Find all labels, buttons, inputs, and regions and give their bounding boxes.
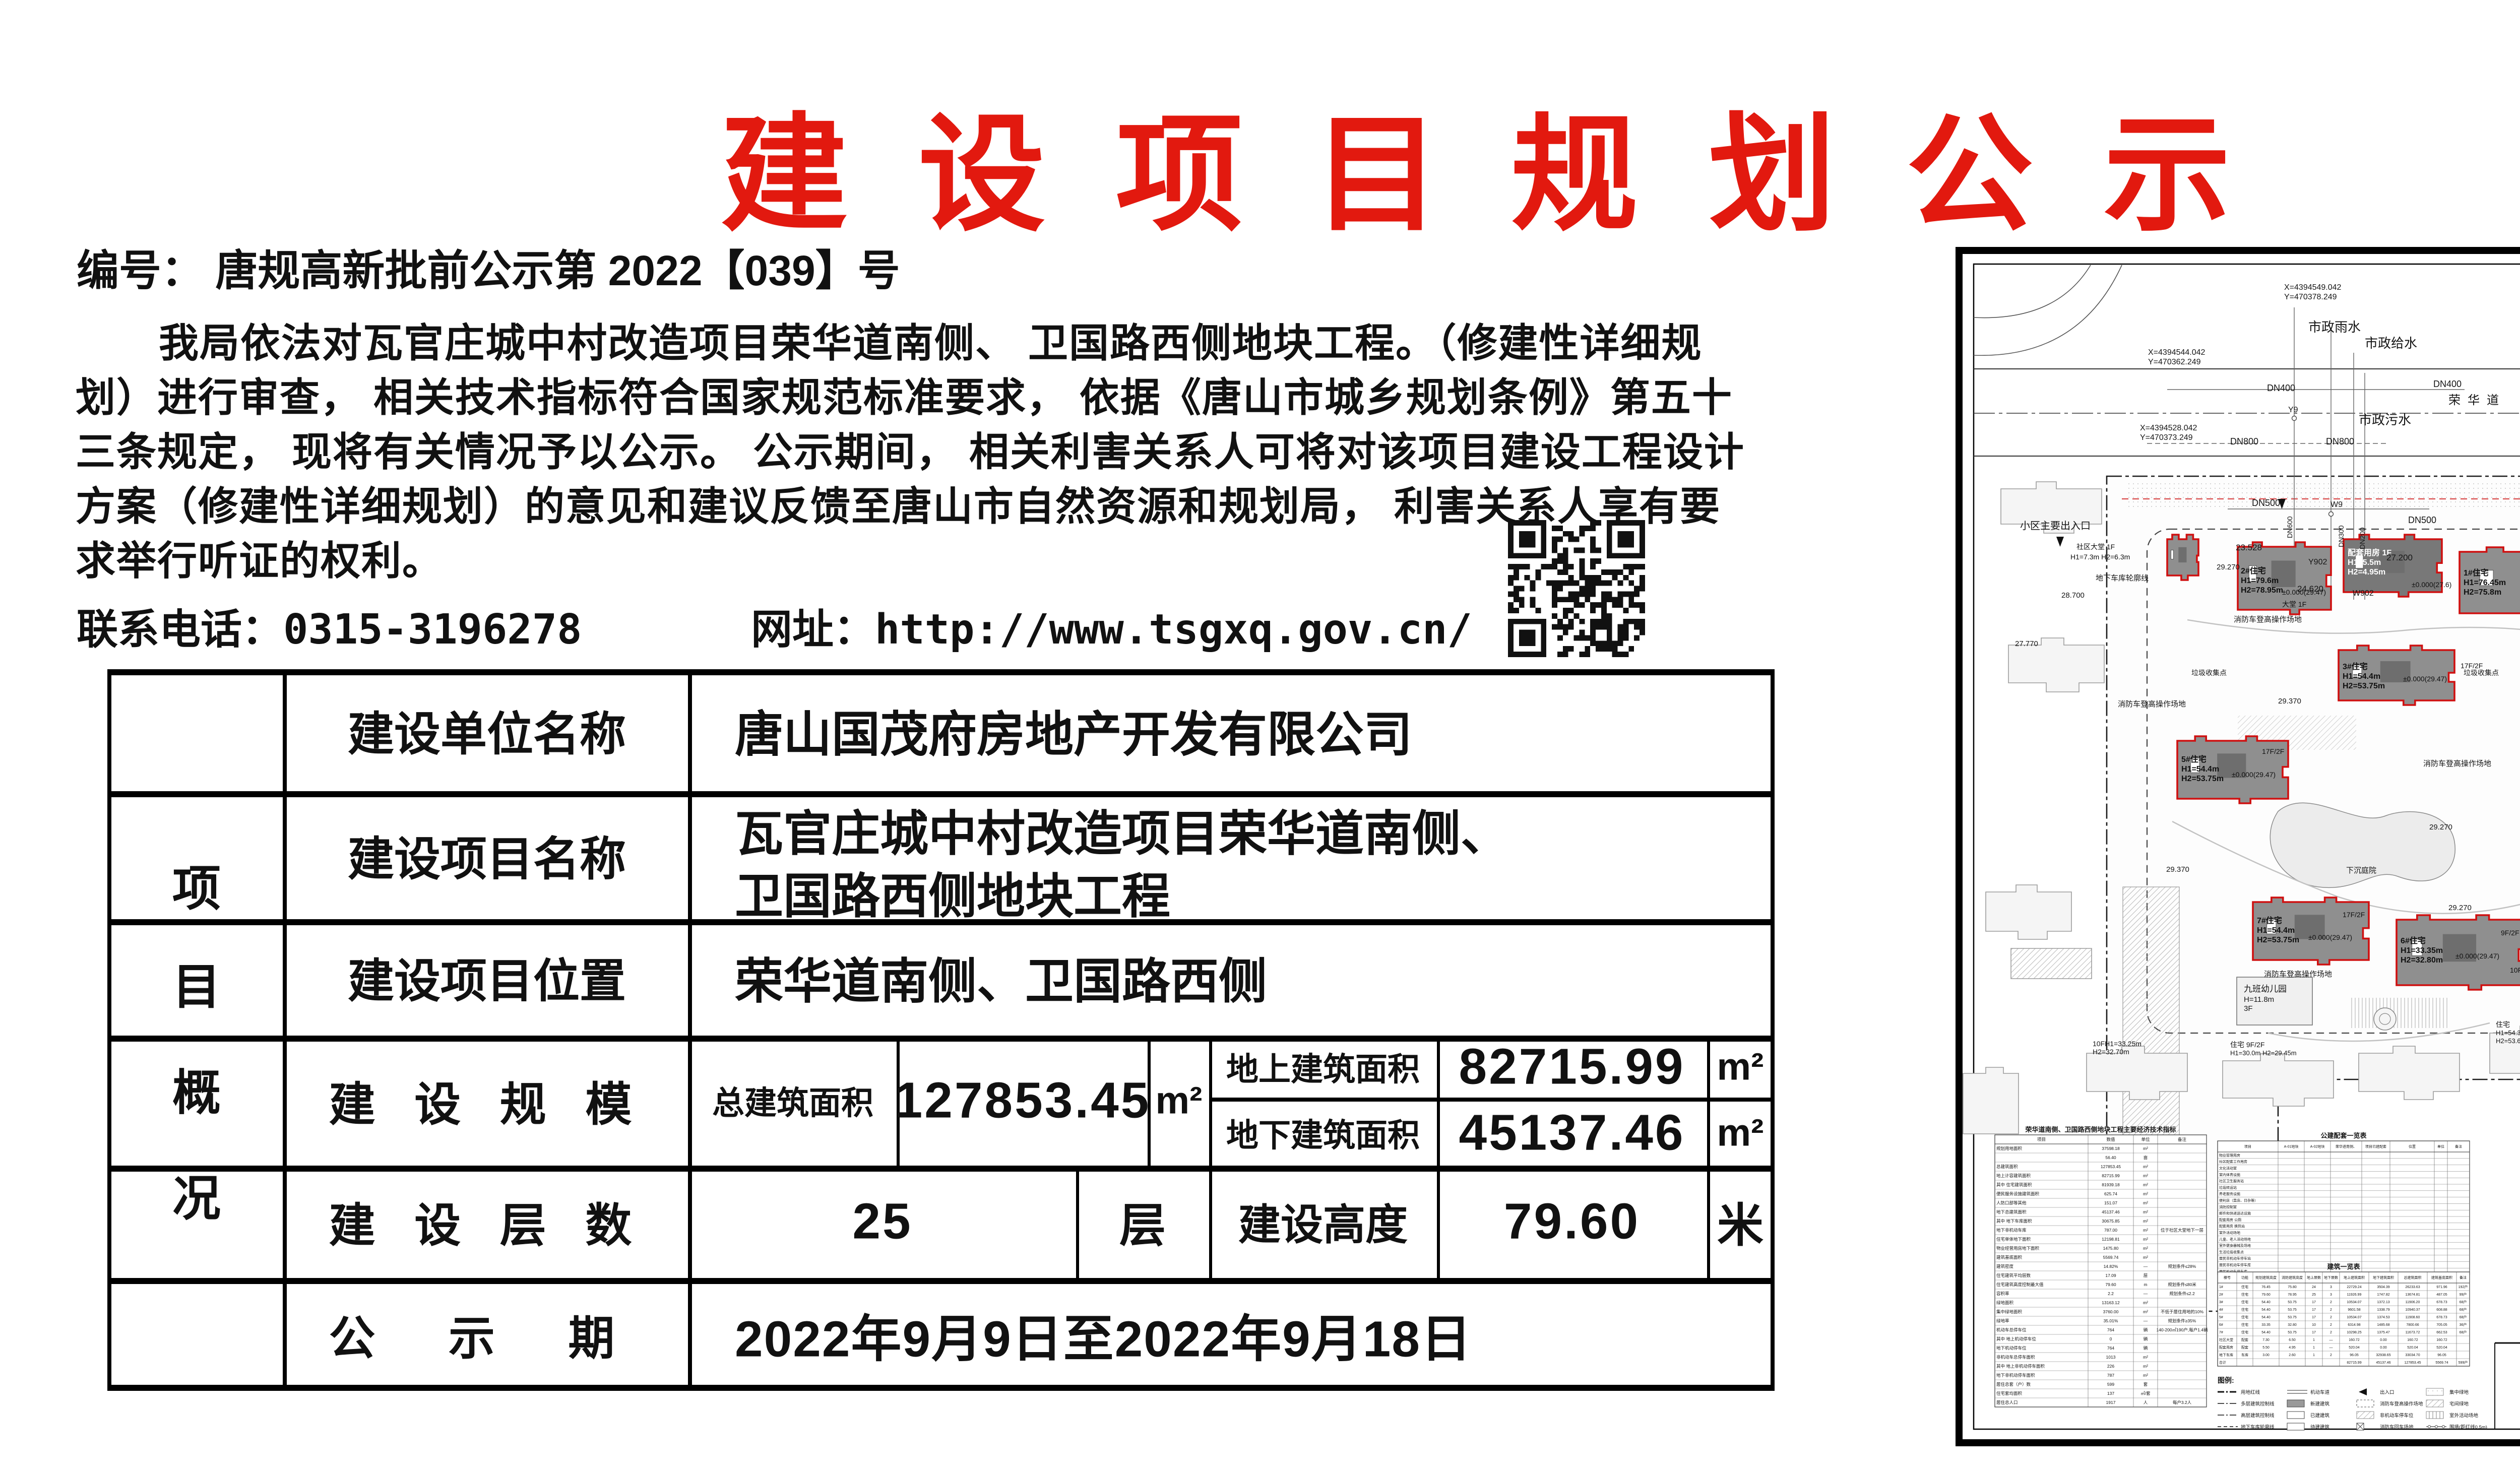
building-list-table-cell: 17 <box>2312 1308 2316 1312</box>
plan-label: 住宅 9F/2F <box>2230 1041 2264 1049</box>
economic-indicator-table-cell: m² <box>2143 1228 2148 1233</box>
building-label: ±0.000(29.47) <box>2308 933 2352 941</box>
economic-indicator-table-cell: 37598.18 <box>2102 1146 2120 1151</box>
dotted-strip <box>2127 483 2520 510</box>
building-list-table-cell: 53.75 <box>2288 1308 2297 1312</box>
economic-indicator-table-cell: 居住总套（户）数 <box>1996 1382 2031 1387</box>
building-label: 2#住宅 <box>2241 566 2266 575</box>
building-list-table-cell: 127853.45 <box>2404 1361 2421 1365</box>
building-list-table-cell: 25 <box>2312 1293 2316 1297</box>
plan-legend-item: 高层建筑控制线 <box>2241 1413 2275 1419</box>
economic-indicator-table-cell: m² <box>2143 1255 2148 1260</box>
plan-label: 消防车登高操作场地 <box>2264 970 2332 979</box>
building-list-table-cell: 1 <box>2313 1346 2315 1350</box>
economic-indicator-table-cell: m² <box>2143 1209 2148 1214</box>
building-list-table-cell: 4.95 <box>2289 1346 2296 1350</box>
building-list-table-cell: 32938.65 <box>2376 1354 2390 1357</box>
economic-indicator-table-cell: 3760.00 <box>2103 1309 2119 1314</box>
contact-line: 联系电话：0315-3196278 网址：http://www.tsgxq.go… <box>77 596 1472 656</box>
building-list-table-cell: 住宅 <box>2241 1307 2248 1312</box>
notice-title: 建设项目规划公示 <box>721 72 2301 255</box>
public-facility-table-cell: 室外活动场地 <box>2219 1230 2240 1235</box>
building-list-table-cell: 配套 <box>2241 1337 2248 1342</box>
public-facility-table: 公建配套一览表项目A-01地块A-02地块荣华道南侧、项目已建配套位置单位备注物… <box>2218 1132 2470 1274</box>
plan-label: X=4394549.042 <box>2284 283 2342 292</box>
economic-indicator-table-cell: m² <box>2143 1237 2148 1242</box>
contact-phone: 0315-3196278 <box>283 606 582 654</box>
plan-label: DN400 <box>2267 383 2295 393</box>
building-list-table-cell: 11673.72 <box>2406 1331 2420 1334</box>
location-label: 建设项目位置 <box>348 944 626 1011</box>
building-list-table-cell: 配套 <box>2241 1345 2248 1350</box>
economic-indicator-table-cell: m² <box>2143 1309 2148 1314</box>
building-list-table-cell: 68户 <box>2460 1315 2467 1319</box>
economic-indicator-table-cell: m² <box>2143 1364 2148 1369</box>
plan-element <box>2426 1388 2443 1395</box>
project-name-label: 建设项目名称 <box>348 822 626 889</box>
economic-indicator-table-cell: 住宅建筑高度控制最大值 <box>1996 1282 2044 1287</box>
building-list-table-cell: 4# <box>2219 1308 2223 1312</box>
economic-indicator-table-cell: 规划条件≤2.2 <box>2169 1291 2195 1296</box>
project-overview-table: 项 目 概 况 建设单位名称 建设项目名称 建设项目位置 建 设 规 模 建 设… <box>107 669 1775 1391</box>
economic-indicator-table-cell: 规划用地面积 <box>1996 1146 2023 1151</box>
building-list-table-cell: 1375.47 <box>2377 1331 2389 1334</box>
building-list-table-cell: 0.00 <box>2380 1338 2387 1342</box>
building-label: ±0.000(29.47) <box>2403 675 2447 683</box>
plan-legend-item: 宅间绿地 <box>2449 1401 2469 1407</box>
building-list-table-cell: 22729.24 <box>2347 1286 2361 1289</box>
building-label: H1=54.4m <box>2181 765 2219 774</box>
project-name-value-line2: 卫国路西侧地块工程 <box>735 857 1170 927</box>
plan-label: DN800 <box>2230 436 2258 446</box>
building-list-table-header: 地下层数 <box>2324 1275 2338 1279</box>
activity-ground <box>2349 998 2449 1028</box>
economic-indicator-table: 荣华道南侧、卫国路西侧地块工程主要经济技术指标项目数值单位备注规划用地面积375… <box>1995 1126 2208 1407</box>
public-facility-table-header: A-02地块 <box>2310 1144 2325 1148</box>
plan-legend-item: 新建建筑 <box>2310 1401 2330 1407</box>
website-link[interactable]: http://www.tsgxq.gov.cn/ <box>875 606 1472 654</box>
building-roof-core <box>2178 547 2186 562</box>
plan-element <box>2287 1412 2304 1419</box>
building-list-table-cell: 99户 <box>2460 1292 2467 1297</box>
building-label: 9F/2F <box>2501 929 2519 937</box>
building-list-table-cell: 3# <box>2219 1301 2223 1304</box>
plan-element <box>2426 1412 2443 1419</box>
building-list-table-cell: 17 <box>2312 1316 2316 1319</box>
plan-label: DN500 <box>2252 498 2280 508</box>
building-label: 7#住宅 <box>2257 916 2282 925</box>
building-list-table-cell: 住宅 <box>2241 1292 2248 1297</box>
building-list-table-cell: 11906.20 <box>2406 1301 2420 1304</box>
below-area-unit: m² <box>1717 1111 1764 1155</box>
building-label: ±0.000(29.47) <box>2455 952 2499 960</box>
building-list-table-cell: 1747.82 <box>2377 1293 2389 1297</box>
plan-label: X=4394528.042 <box>2140 424 2197 432</box>
economic-indicator-table-cell: 集中绿地面积 <box>1996 1309 2023 1314</box>
plan-label: DN600 <box>2286 516 2294 538</box>
building-list-table-cell: 地下车库 <box>2219 1353 2233 1357</box>
below-area-label: 地下建筑面积 <box>1226 1110 1420 1156</box>
building-list-table-cell: 3504.39 <box>2377 1286 2389 1289</box>
economic-indicator-table-cell: 亩 <box>2144 1155 2148 1160</box>
building-list-table-cell: 6# <box>2219 1323 2223 1327</box>
building-label: 社区大堂 1F <box>2076 543 2115 551</box>
public-facility-table-header: 项目已建配套 <box>2365 1144 2386 1148</box>
economic-indicator-table-cell: 2.2 <box>2108 1291 2114 1296</box>
economic-indicator-table-cell: 规划条件≤80米 <box>2168 1282 2196 1287</box>
total-area-label: 总建筑面积 <box>712 1077 873 1124</box>
economic-indicator-table-cell: 1917 <box>2106 1400 2116 1405</box>
body-line-1: 我局依法对瓦官庄城中村改造项目荣华道南侧、 卫国路西侧地块工程。（修建性详细规 <box>76 310 1702 368</box>
economic-indicator-table-cell: — <box>2144 1318 2148 1323</box>
economic-indicator-table-cell: 总建筑面积 <box>1996 1164 2018 1169</box>
economic-indicator-table-cell: 764 <box>2107 1327 2114 1332</box>
economic-indicator-table-cell: 人防口部等其他 <box>1996 1200 2027 1205</box>
floors-label: 建 设 层 数 <box>329 1188 645 1255</box>
public-facility-table-header: 备注 <box>2455 1144 2462 1148</box>
building-list-table-cell: 10534.07 <box>2347 1316 2361 1319</box>
public-facility-table-cell: 邮件和快递送达设施 <box>2219 1211 2251 1215</box>
building-list-table-cell: 17 <box>2312 1331 2316 1334</box>
height-label: 建设高度 <box>1238 1191 1408 1252</box>
building-list-table-cell: 5# <box>2219 1316 2223 1319</box>
economic-indicator-table-cell: 30675.85 <box>2102 1219 2120 1224</box>
economic-indicator-table-cell: 住宅套均面积 <box>1996 1391 2023 1396</box>
public-facility-table-header: 位置 <box>2409 1144 2416 1148</box>
building-label: H2=53.75m <box>2181 775 2224 783</box>
building-list-table-cell: 2 <box>2330 1316 2332 1319</box>
building-list-table-cell: 53.75 <box>2288 1301 2297 1304</box>
height-unit: 米 <box>1717 1188 1763 1255</box>
building-label: H1=54.4m <box>2257 926 2295 935</box>
building-list-table-cell: 10 <box>2312 1323 2316 1327</box>
economic-indicator-table-cell: 建筑基底面积 <box>1996 1255 2023 1260</box>
plan-element <box>2426 1400 2443 1407</box>
plan-label: H2=32.70m <box>2093 1048 2129 1056</box>
plan-label: 消防车登高操作场地 <box>2423 759 2491 768</box>
building-label: H1=76.45m <box>2464 579 2506 587</box>
plan-label: 消防车登高操作场地 <box>2234 615 2302 624</box>
plan-label: 29.370 <box>2278 697 2301 706</box>
public-facility-table-cell: 居民非机动车停车站 <box>2219 1256 2251 1261</box>
economic-indicator-table-cell: 规划条件≥35% <box>2168 1318 2196 1323</box>
building-list-table-cell: 3 <box>2330 1286 2332 1289</box>
site-plan-svg: 社区大堂 1FH1=7.3m H2=6.3m2#住宅H1=79.6mH2=78.… <box>1956 247 2520 1446</box>
building-list-table-cell: 96.05 <box>2350 1354 2359 1357</box>
building-list-table-cell: 10940.37 <box>2405 1308 2420 1312</box>
economic-indicator-table-cell: 辆 <box>2144 1346 2148 1351</box>
economic-indicator-table-header: 备注 <box>2178 1137 2187 1142</box>
economic-indicator-table-cell: 1013 <box>2106 1355 2116 1360</box>
building-list-table-header: 地上层数 <box>2307 1275 2321 1279</box>
building-list-table-cell: 7800.66 <box>2406 1323 2419 1327</box>
plan-label: DN200 <box>2358 527 2366 549</box>
plan-label: 3F <box>2244 1004 2253 1013</box>
unit-name-label: 建设单位名称 <box>348 697 626 764</box>
economic-indicator-table-cell: 127853.45 <box>2101 1164 2121 1169</box>
building-list-table-cell: 68户 <box>2460 1330 2467 1334</box>
economic-indicator-table-cell: 其中 地下车库面积 <box>1996 1219 2032 1224</box>
building-label: H2=4.95m <box>2348 568 2385 577</box>
building-list-table-cell: 2 <box>2330 1323 2332 1327</box>
building-list-table-cell: 520.04 <box>2436 1346 2447 1350</box>
economic-indicator-table-cell: 151.07 <box>2104 1200 2117 1205</box>
economic-indicator-table-cell: 其中 住宅建筑面积 <box>1996 1182 2032 1187</box>
building-list-table-cell: 33034.70 <box>2405 1354 2420 1357</box>
building-label: H2=32.80m <box>2401 956 2443 965</box>
building-list-table-cell: 2 <box>2330 1308 2332 1312</box>
economic-indicator-table-cell: 0 <box>2110 1336 2112 1341</box>
plan-element <box>2287 1400 2304 1407</box>
building-list-table-cell: 10534.07 <box>2347 1301 2361 1304</box>
economic-indicator-table-cell: 每户3.2人 <box>2173 1400 2192 1405</box>
plan-label: 小区主要出入口 <box>2020 520 2091 532</box>
economic-indicator-table-cell: 建筑密度 <box>1996 1264 2014 1269</box>
economic-indicator-table-cell: 住宅单体地下面积 <box>1996 1237 2031 1242</box>
economic-indicator-table-cell: 绿地率 <box>1996 1318 2009 1323</box>
plan-legend-item: 机动车道 <box>2310 1389 2330 1395</box>
building-list-table-cell: 75.80 <box>2288 1286 2297 1289</box>
building-label: H1=54.4m <box>2343 672 2380 681</box>
total-area-value: 127853.45 <box>895 1072 1151 1130</box>
plan-label: Y=470373.249 <box>2140 433 2193 442</box>
building-list-table-cell: 住宅 <box>2241 1315 2248 1319</box>
building-list-table-cell: 2# <box>2219 1293 2223 1297</box>
economic-indicator-table-cell: 17.09 <box>2105 1273 2116 1278</box>
building-list-table-cell: 7.30 <box>2262 1338 2270 1342</box>
economic-indicator-table-cell: 764 <box>2107 1346 2114 1351</box>
public-facility-table-cell: 文化活动室 <box>2219 1166 2237 1170</box>
plan-label: 27.770 <box>2015 639 2038 648</box>
building-label: H2=75.8m <box>2464 588 2501 597</box>
economic-indicator-table-cell: ㎡/套 <box>2140 1391 2151 1396</box>
doc-number: 编号： 唐规高新批前公示第 2022【039】号 <box>77 237 900 298</box>
building-list-table-cell: 17 <box>2312 1301 2316 1304</box>
side-label-char: 项 <box>172 850 221 920</box>
building-list-table-cell: 192户 <box>2459 1285 2468 1289</box>
building-list-table-cell: 79.60 <box>2261 1293 2271 1297</box>
plan-label: 29.270 <box>2217 563 2240 571</box>
public-facility-table-cell: 垃圾转运站 <box>2219 1185 2237 1190</box>
plan-label: 29.270 <box>2448 904 2472 912</box>
building-list-table-cell: 6.50 <box>2289 1338 2296 1342</box>
plan-label: H2=53.65m <box>2496 1037 2520 1045</box>
building-list-table-cell: 96.05 <box>2437 1354 2446 1357</box>
building-list-table-cell: 1372.13 <box>2377 1301 2389 1304</box>
plan-label: 下沉庭院 <box>2346 866 2376 875</box>
economic-indicator-table-header: 单位 <box>2141 1137 2150 1142</box>
public-facility-table-cell: 室外健身器械及场地 <box>2219 1243 2251 1248</box>
building-list-table-cell: 2 <box>2330 1354 2332 1357</box>
building-list-table-cell: 76.45 <box>2261 1286 2271 1289</box>
plan-element <box>2357 1412 2374 1419</box>
economic-indicator-table-cell: m² <box>2143 1191 2148 1196</box>
building-list-table-title: 建筑一览表 <box>2327 1263 2360 1270</box>
building-label: 6#住宅 <box>2401 936 2426 945</box>
plan-label: W9 <box>2330 500 2343 509</box>
body-line-4: 方案（修建性详细规划）的意见和建议反馈至唐山市自然资源和规划局， 利害关系人享有… <box>76 474 1721 532</box>
public-facility-table-cell: 社区配套工作用房 <box>2219 1160 2247 1164</box>
plan-label: 23.528 <box>2236 543 2262 552</box>
building-list-table-cell: 11926.99 <box>2347 1293 2362 1297</box>
building-label: 1#住宅 <box>2464 568 2489 578</box>
public-facility-table-cell: 居民非机动车停车库 <box>2219 1262 2251 1267</box>
plan-label: 29.270 <box>2429 823 2452 831</box>
economic-indicator-table-cell: 其中 地上机动停车位 <box>1996 1336 2036 1341</box>
economic-indicator-table-cell: m² <box>2143 1164 2148 1169</box>
public-facility-table-header: 荣华道南侧、 <box>2336 1144 2357 1148</box>
economic-indicator-table-cell: — <box>2144 1291 2148 1296</box>
building-list-table-cell: 2 <box>2330 1331 2332 1334</box>
plan-label: Y9 <box>2288 406 2298 414</box>
economic-indicator-table-cell: 12198.81 <box>2102 1237 2120 1242</box>
economic-indicator-table-cell: m² <box>2143 1173 2148 1178</box>
economic-indicator-table-cell: 787 <box>2107 1373 2114 1378</box>
plan-label: 市政给水 <box>2365 336 2417 351</box>
plan-element <box>2442 1426 2445 1428</box>
building-list-table-cell: 2.60 <box>2289 1354 2296 1357</box>
economic-indicator-table-cell: m² <box>2143 1219 2148 1224</box>
building-list-table-cell: 662.53 <box>2436 1331 2447 1334</box>
building-list-table-header: 地上建筑面积 <box>2344 1275 2365 1279</box>
fountain <box>2374 1008 2396 1030</box>
economic-indicator-table-cell: m² <box>2143 1246 2148 1251</box>
public-facility-table-cell: 室内体育设施 <box>2219 1172 2240 1177</box>
economic-indicator-table-cell: m² <box>2143 1355 2148 1360</box>
period-value: 2022年9月9日至2022年9月18日 <box>735 1298 1472 1371</box>
plan-label: 住宅 <box>2496 1020 2510 1029</box>
building-list-table-cell: — <box>2329 1346 2333 1350</box>
building-list-table-header: 功能 <box>2241 1275 2248 1279</box>
economic-indicator-table-cell: 机动车总停车位 <box>1996 1327 2027 1332</box>
building-list-table-cell: 68户 <box>2460 1307 2467 1312</box>
economic-indicator-table-cell: 其中 地上非机动停车面积 <box>1996 1364 2045 1369</box>
body-line-2: 划）进行审查， 相关技术指标符合国家规范标准要求， 依据《唐山市城乡规划条例》第… <box>76 365 1733 423</box>
economic-indicator-table-cell: 规划条件≤28% <box>2168 1264 2196 1269</box>
economic-indicator-table-cell: 82715.99 <box>2102 1173 2120 1178</box>
building-list-table-cell: 54.40 <box>2261 1331 2271 1334</box>
building-list-table-cell: 54.40 <box>2261 1308 2271 1312</box>
project-name-value-line1: 瓦官庄城中村改造项目荣华道南侧、 <box>735 795 1509 865</box>
contact-phone-label: 联系电话： <box>77 607 283 653</box>
plan-label: DN300 <box>2337 525 2345 547</box>
plan-label: 地下车库轮廓线 <box>2096 574 2149 583</box>
site-plan-drawing: 社区大堂 1FH1=7.3m H2=6.3m2#住宅H1=79.6mH2=78.… <box>1956 247 2520 1446</box>
economic-indicator-table-cell: m² <box>2143 1373 2148 1378</box>
plan-label: H1=54.3m <box>2496 1029 2520 1037</box>
building-list-table-header: 建筑基底面积 <box>2431 1275 2452 1279</box>
public-facility-table-title: 公建配套一览表 <box>2320 1132 2367 1139</box>
building-list-table-cell: 24 <box>2312 1286 2316 1289</box>
below-area-value: 45137.46 <box>1459 1104 1685 1162</box>
economic-indicator-table-cell: 14.82% <box>2104 1264 2118 1269</box>
building-list-table-cell: 82715.99 <box>2347 1361 2361 1365</box>
building-list-table-cell: 住宅 <box>2241 1300 2248 1304</box>
unit-name-value: 唐山国茂府房地产开发有限公司 <box>735 695 1412 765</box>
building-list-table-cell: 11908.60 <box>2406 1316 2420 1319</box>
building-label: ±0.000(29.47) <box>2232 771 2276 779</box>
building-list-table-cell: 26233.63 <box>2405 1286 2420 1289</box>
building-list-table-header: 地下建筑面积 <box>2373 1275 2394 1279</box>
building-list-table-cell: 54.40 <box>2261 1316 2271 1319</box>
building-list-table-cell: 678.73 <box>2436 1316 2447 1319</box>
building-label: H1=7.3m H2=6.3m <box>2070 553 2130 561</box>
plan-label: 24.620 <box>2297 584 2323 594</box>
building-list-table-header: 消防建筑高度 <box>2282 1275 2303 1279</box>
building-list-table-cell: 1 <box>2313 1338 2315 1342</box>
building-list-table-cell: 971.96 <box>2436 1286 2447 1289</box>
plan-legend-item: 出入口 <box>2380 1389 2395 1395</box>
plan-legend-item: 多层建筑控制线 <box>2241 1401 2275 1407</box>
economic-indicator-table-cell: 79.60 <box>2105 1282 2116 1287</box>
public-facility-table-grid <box>2218 1141 2470 1274</box>
plan-label: 荣华道 <box>2448 394 2506 407</box>
plan-legend-item: 已建建筑 <box>2310 1413 2330 1419</box>
plan-legend-title: 图例: <box>2218 1376 2234 1384</box>
public-facility-table-cell: 配套用房 公厕 <box>2219 1218 2241 1222</box>
building-list-table-cell: 160.72 <box>2436 1338 2447 1342</box>
economic-indicator-table-cell: 13163.12 <box>2102 1300 2120 1305</box>
plan-label: W902 <box>2353 589 2374 598</box>
side-label-char: 概 <box>172 1054 221 1124</box>
total-area-unit: m² <box>1156 1079 1203 1123</box>
economic-indicator-table-cell: 599 <box>2107 1382 2114 1387</box>
side-label-char: 况 <box>172 1160 221 1230</box>
plan-label: DN500 <box>2408 515 2436 525</box>
building-list-table-cell: 9601.58 <box>2348 1308 2360 1312</box>
building-list-table-cell: 68户 <box>2460 1300 2467 1304</box>
above-area-unit: m² <box>1717 1045 1764 1089</box>
public-facility-table-cell: 儿童、老人活动场地 <box>2219 1237 2251 1241</box>
building-list-table-header: 总建筑面积 <box>2404 1275 2422 1279</box>
economic-indicator-table-cell: 物业经营用房地下面积 <box>1996 1246 2040 1251</box>
building-list-table-cell: — <box>2329 1338 2333 1342</box>
plan-legend-item: 室外活动场地 <box>2449 1413 2479 1419</box>
economic-indicator-table-cell: 5569.74 <box>2103 1255 2119 1260</box>
plan-label: Y902 <box>2308 558 2327 566</box>
economic-indicator-table-cell: 625.74 <box>2104 1191 2117 1196</box>
above-area-label: 地上建筑面积 <box>1226 1044 1420 1090</box>
economic-indicator-table-cell: m² <box>2143 1300 2148 1305</box>
economic-indicator-table-cell: 人 <box>2144 1400 2148 1405</box>
plan-legend-item: 用地红线 <box>2241 1389 2260 1395</box>
economic-indicator-table-cell: 56.40 <box>2105 1155 2116 1160</box>
building-list-table-cell: 33.35 <box>2261 1323 2271 1327</box>
body-line-5: 求举行听证的权利。 <box>76 528 443 586</box>
scale-label: 建 设 规 模 <box>329 1067 645 1134</box>
building-list-table-cell: 13674.81 <box>2405 1293 2420 1297</box>
plan-label: Y=470362.249 <box>2148 358 2201 366</box>
building-list-table-header: 规划建筑高度 <box>2255 1275 2277 1279</box>
building-label: H1=79.6m <box>2241 577 2279 585</box>
plan-element <box>2435 1426 2438 1428</box>
economic-indicator-table-cell: 居住总人口 <box>1996 1400 2018 1405</box>
building-list-table-cell: 1374.53 <box>2377 1316 2389 1319</box>
economic-indicator-table-cell: 地上计容建筑面积 <box>1996 1173 2031 1178</box>
public-facility-table-cell: 配套用房 换热站 <box>2219 1224 2245 1229</box>
building-list-table-cell: 0.00 <box>2380 1346 2387 1350</box>
height-value: 79.60 <box>1504 1193 1640 1251</box>
plan-legend-item: 非机动车停车位 <box>2380 1413 2414 1419</box>
plan-element <box>2428 1426 2431 1428</box>
building-list-table-cell: 678.73 <box>2436 1301 2447 1304</box>
economic-indicator-table-cell: 地下非机动车库 <box>1996 1228 2027 1233</box>
building-list-table-cell: 住宅 <box>2241 1330 2248 1334</box>
economic-indicator-table-cell: 辆 <box>2144 1327 2148 1332</box>
plan-label: H=11.8m <box>2244 995 2274 1004</box>
building-list-table-cell: 3.00 <box>2262 1354 2270 1357</box>
public-facility-table-cell: 社区卫生服务站 <box>2219 1179 2244 1183</box>
